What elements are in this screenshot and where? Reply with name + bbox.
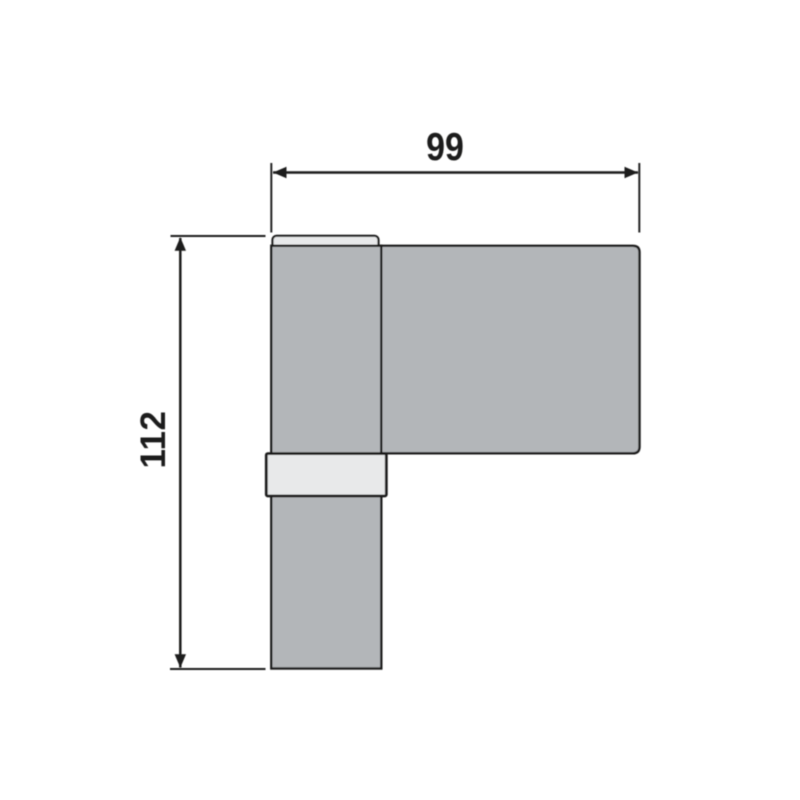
svg-text:112: 112 [134, 411, 173, 469]
svg-text:99: 99 [426, 125, 464, 169]
